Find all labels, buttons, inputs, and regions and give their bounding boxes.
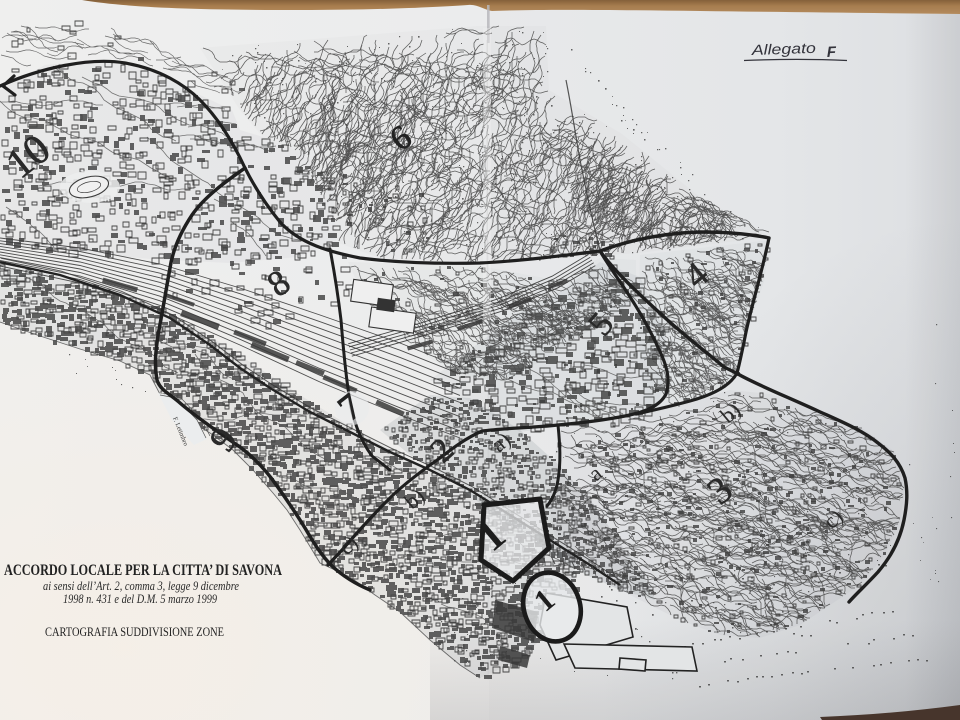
svg-text:CARTOGRAFIA SUDDIVISIONE ZONE: CARTOGRAFIA SUDDIVISIONE ZONE	[45, 625, 224, 639]
svg-text:F: F	[827, 44, 838, 61]
svg-text:ACCORDO LOCALE PER LA CITTA’ D: ACCORDO LOCALE PER LA CITTA’ DI SAVONA	[4, 562, 282, 579]
svg-text:ai sensi dell’Art. 2, comma 3,: ai sensi dell’Art. 2, comma 3, legge 9 d…	[43, 579, 239, 593]
svg-text:1998 n. 431 e del D.M. 5 marzo: 1998 n. 431 e del D.M. 5 marzo 1999	[63, 592, 218, 606]
svg-text:Allegato: Allegato	[750, 41, 816, 59]
